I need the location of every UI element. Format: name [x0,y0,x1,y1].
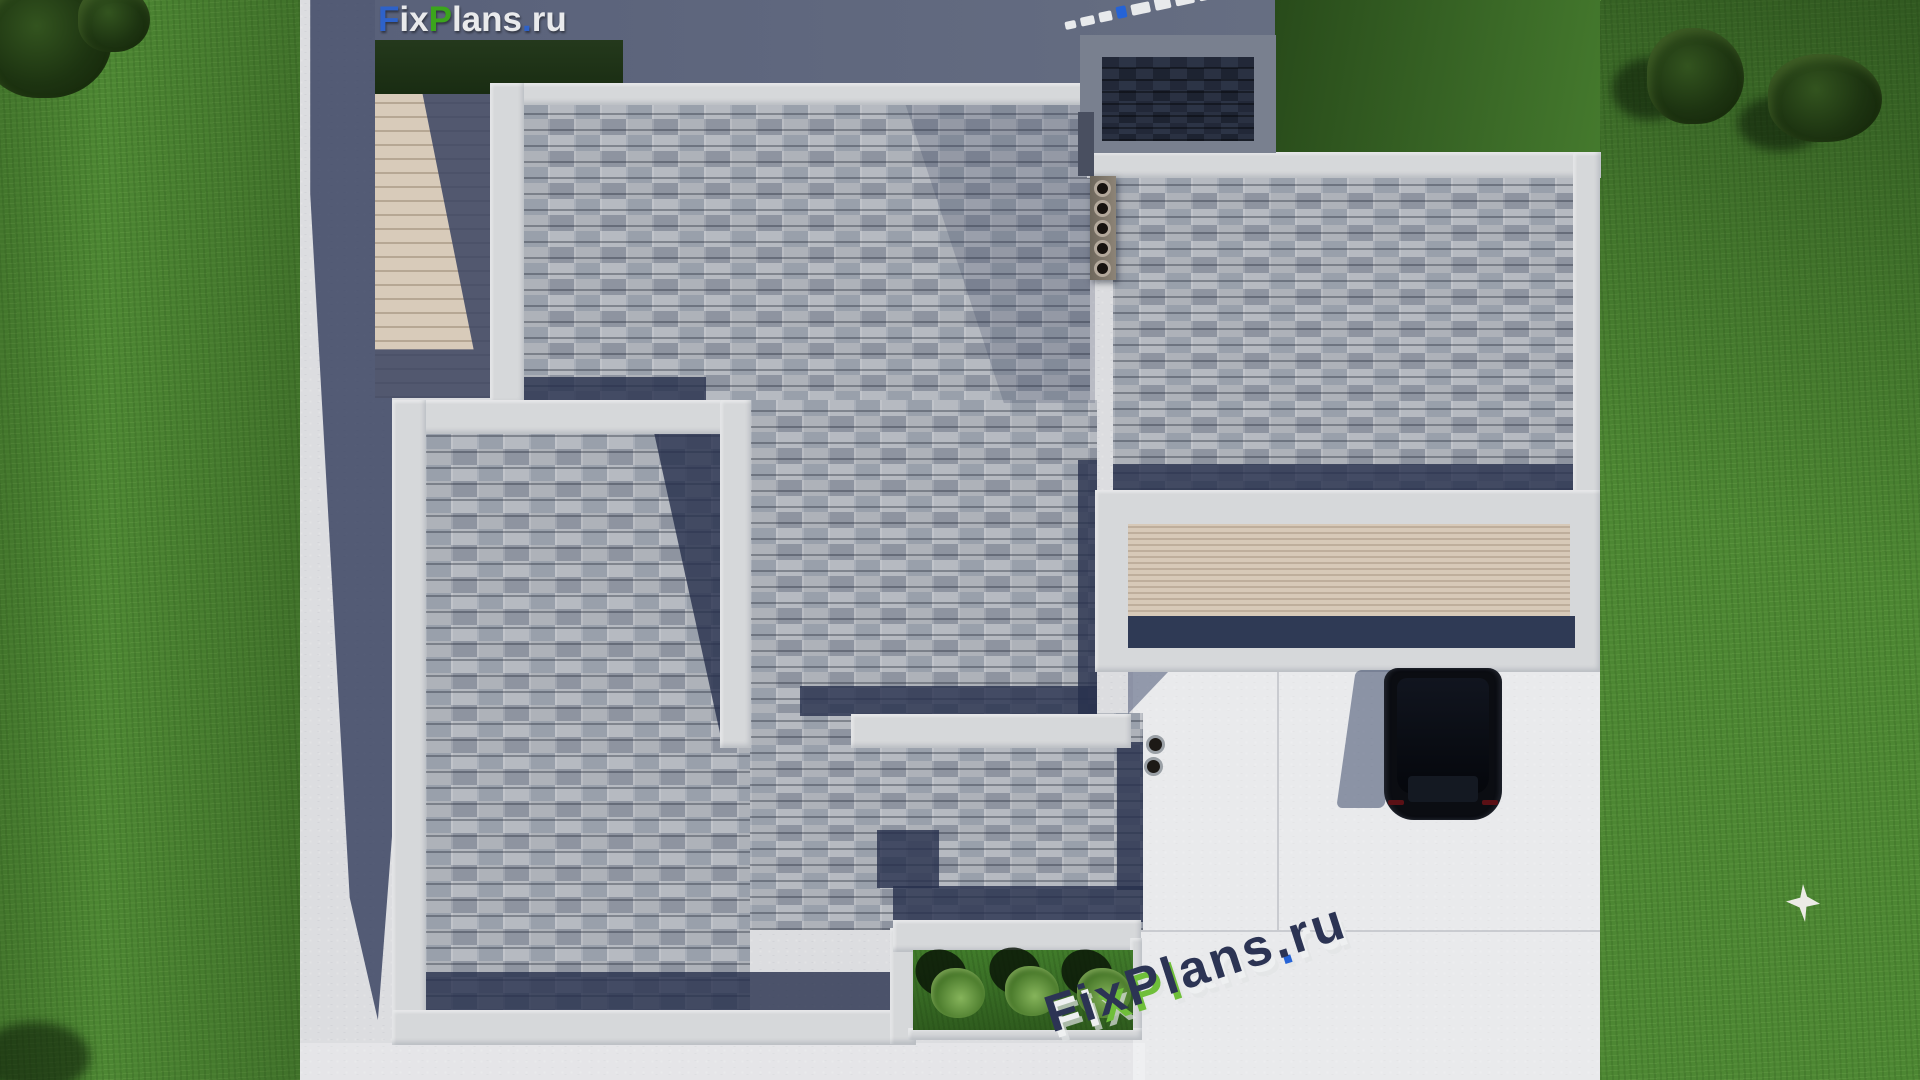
parapet-top [490,83,1092,105]
roof-vent-2 [1144,757,1163,776]
parapet-left-wing-top [392,400,730,434]
roof-shadow-left-wing-bottom [425,972,893,1012]
watermark-top-letter-tip [1115,5,1128,19]
car-rear-window [1408,776,1478,802]
lawn-left-shading [0,0,300,1080]
chimney-box-shingles [1102,57,1254,141]
roof-vent-1 [1146,735,1165,754]
render-canvas: FixPlans.ru FixPlans.ru [0,0,1920,1080]
chimney-wall-side [1078,112,1094,176]
roof-middle-section [750,400,1097,716]
parapet-left-upper [490,83,524,405]
chimney-flue-hole [1094,260,1111,277]
driveway-seam-vertical [1277,668,1279,930]
logo-segment: P [429,0,452,39]
chimney-flue-hole [1094,220,1111,237]
chimney-flue-hole [1094,200,1111,217]
pergola-deck [1128,524,1570,618]
tree-top-right-2 [1768,54,1882,142]
parapet-left-wing-left [392,400,426,1045]
chimney-flue-hole [1094,180,1111,197]
roof-shadow-right-wing [1113,464,1575,492]
fixplans-logo: FixPlans.ru [378,0,567,40]
logo-segment: ru [532,0,567,39]
roof-right-wing [1113,177,1575,490]
car [1384,668,1502,820]
logo-segment: F [378,0,399,39]
chimney-flue-hole [1094,240,1111,257]
lawn-top-right [1275,0,1600,152]
logo-segment: lans [452,0,522,39]
car-taillight-left [1388,800,1404,805]
front-apron [300,1043,1145,1080]
parapet-right-wing-right [1573,152,1600,532]
parapet-right-wing-top [1087,152,1601,178]
car-taillight-right [1482,800,1498,805]
logo-segment: ix [399,0,428,39]
tree-top-right-1 [1647,28,1744,124]
roof-shadow-mid-bottom [800,686,1097,716]
chimney-flue-stack [1090,176,1116,280]
roof-shadow-bottom-right-edge [1117,742,1143,890]
lawn-right [1600,0,1920,1080]
lawn-mid-right [1600,0,1601,1]
parapet-mid-vertical [720,400,751,748]
parapet-mid-horizontal [851,714,1131,748]
roof-shadow-above-planter [893,886,1143,922]
bush [931,968,985,1018]
logo-segment: . [522,0,532,39]
parapet-left-wing-bottom [392,1010,916,1045]
roof-shadow-step-corner [877,830,939,888]
pergola-shadow-band [1128,616,1575,648]
